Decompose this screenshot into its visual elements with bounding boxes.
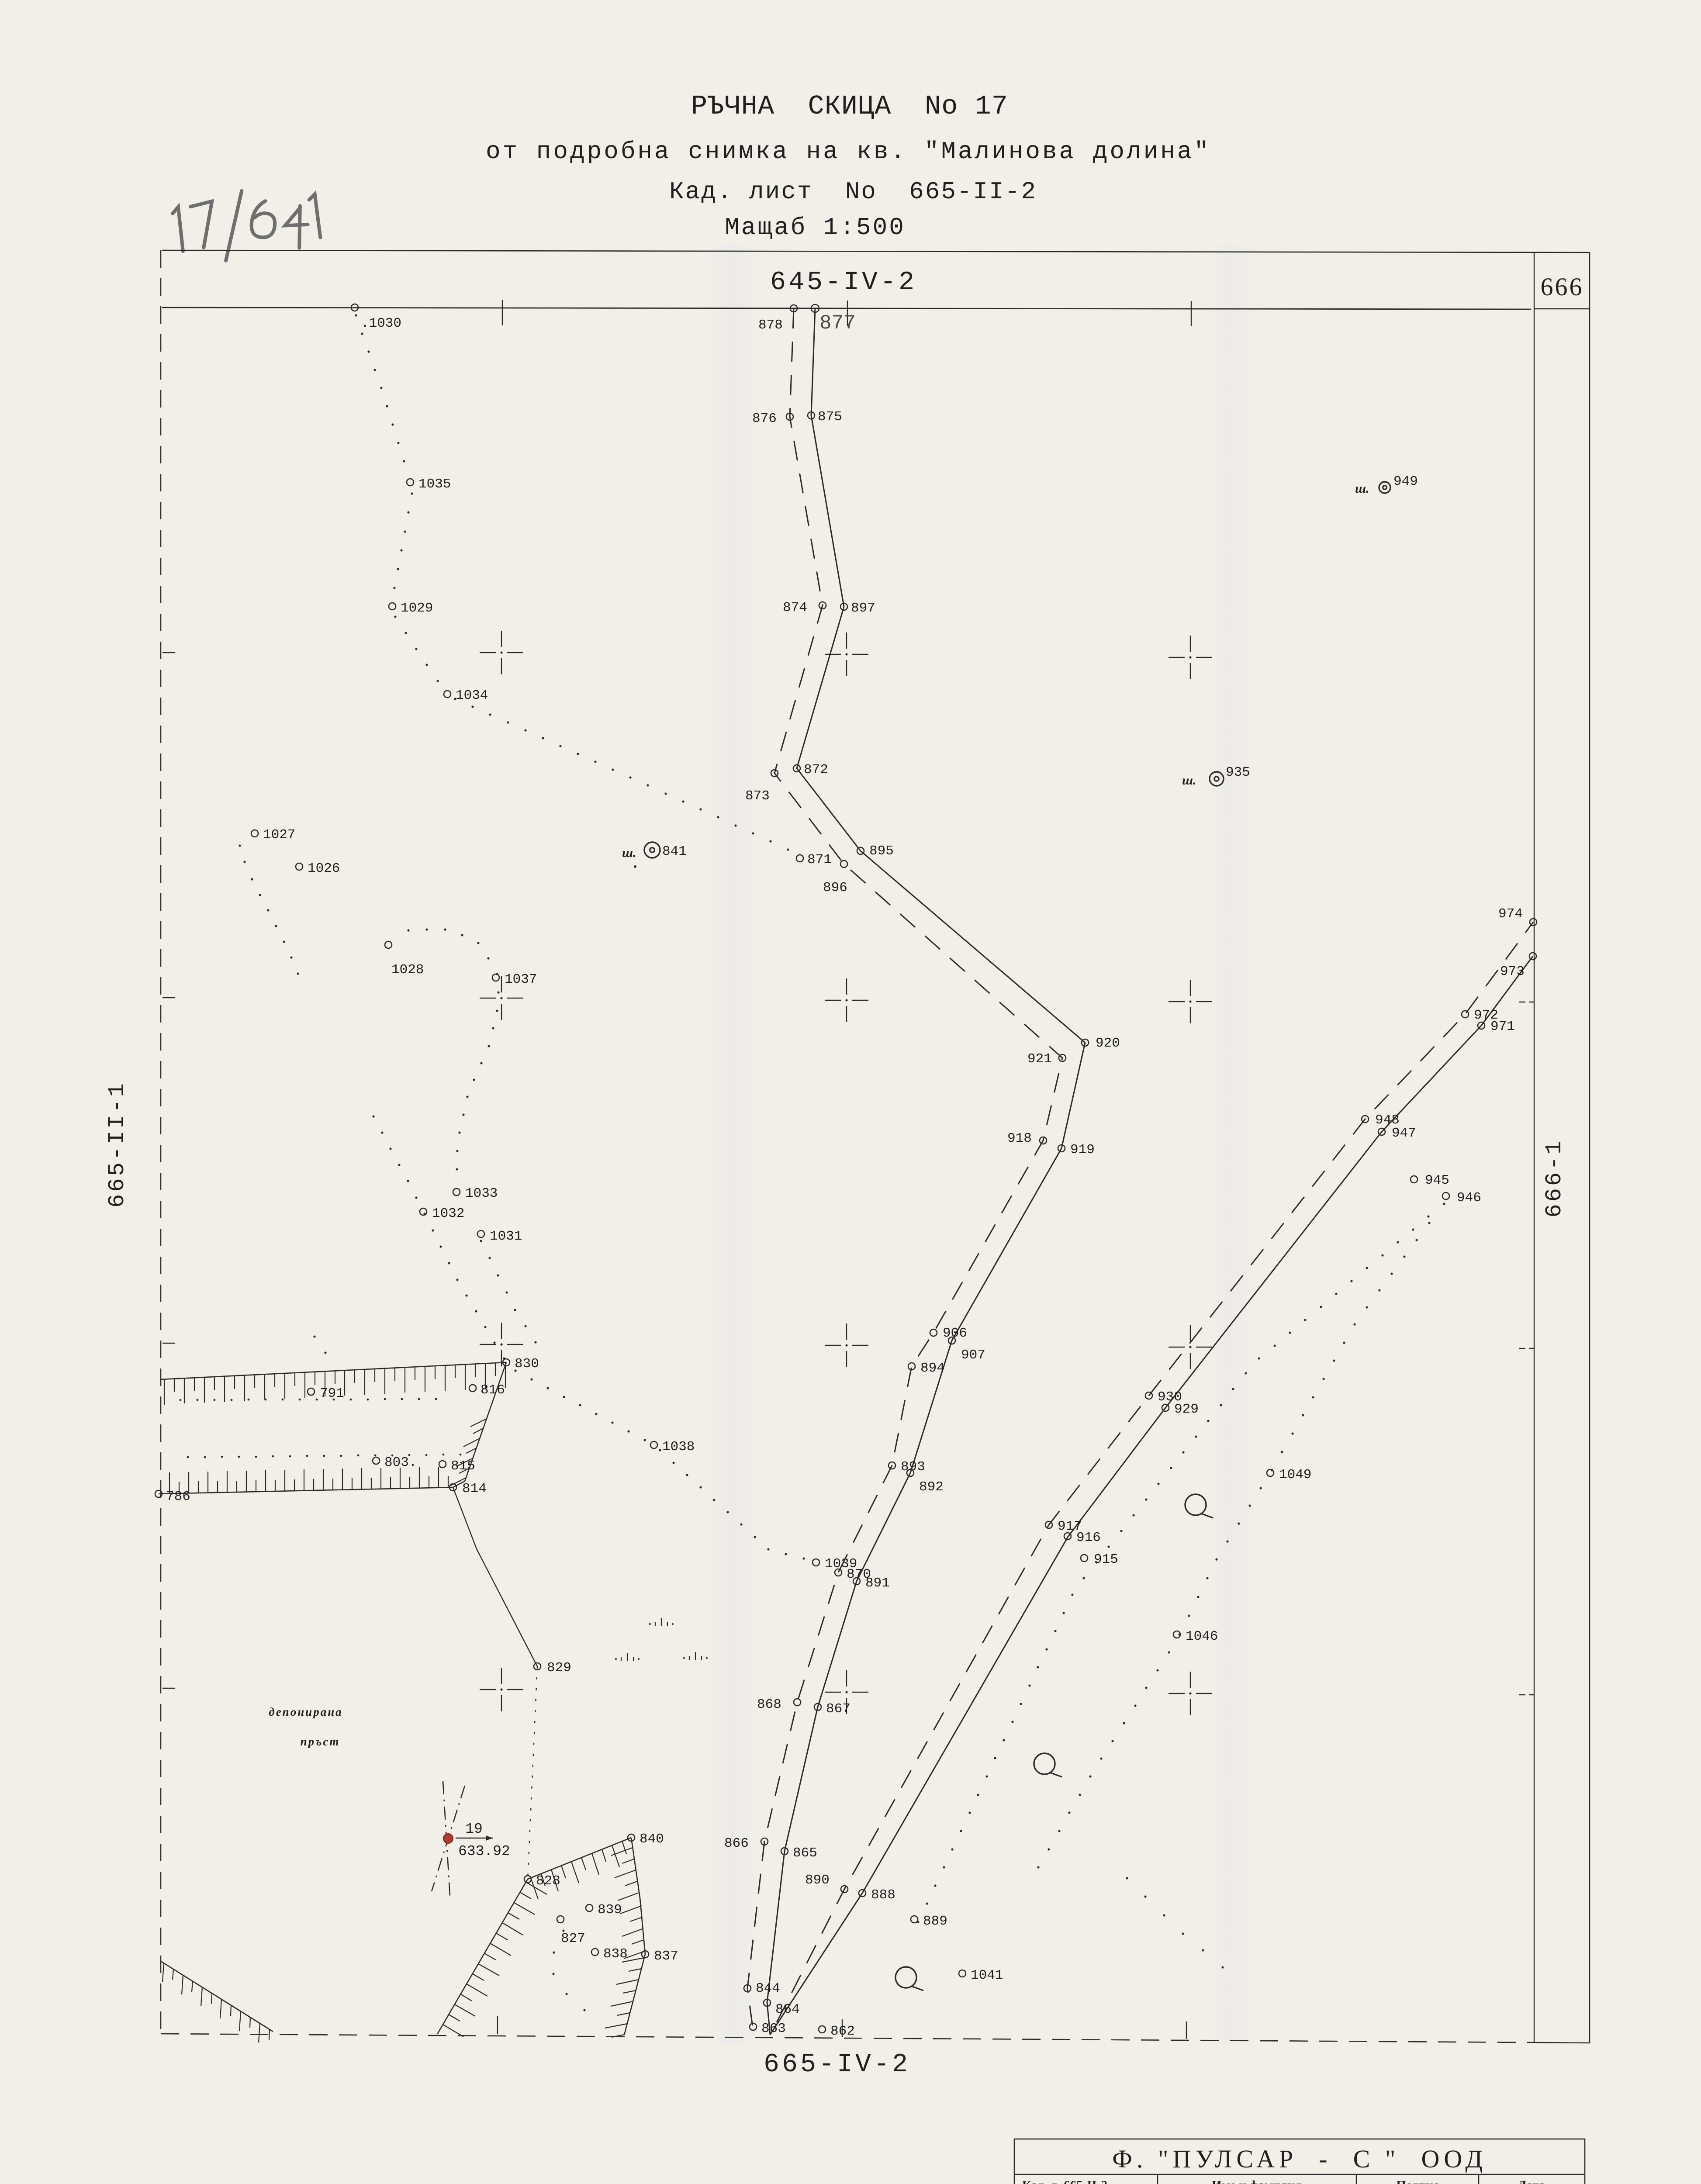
svg-text:1041: 1041 [971,1968,1003,1983]
svg-text:1035: 1035 [418,477,451,492]
svg-text:873: 873 [745,788,770,804]
svg-text:916: 916 [1076,1530,1101,1545]
svg-text:838: 838 [603,1946,628,1962]
svg-text:918: 918 [1007,1131,1032,1146]
svg-text:844: 844 [756,1981,780,1996]
svg-text:840: 840 [640,1832,664,1847]
svg-text:971: 971 [1490,1019,1515,1034]
svg-text:791: 791 [320,1386,344,1401]
svg-text:пръст: пръст [301,1735,340,1748]
svg-text:ш.: ш. [622,846,636,860]
svg-text:973: 973 [1500,964,1525,979]
svg-text:868: 868 [757,1697,781,1712]
svg-text:РЪЧНА СКИЦА Nо 17: РЪЧНА СКИЦА Nо 17 [691,91,1008,122]
svg-text:929: 929 [1174,1402,1199,1417]
svg-text:.1030: .1030 [361,316,401,331]
svg-text:Дата: Дата [1518,2178,1545,2184]
svg-text:815: 815 [451,1458,475,1474]
svg-text:949: 949 [1393,474,1418,489]
svg-text:1027: 1027 [263,827,295,843]
svg-text:665-IV-2: 665-IV-2 [764,2050,910,2080]
svg-text:837: 837 [654,1949,678,1964]
svg-text:ш.: ш. [1355,481,1369,496]
svg-text:866: 866 [724,1836,749,1851]
svg-text:1037: 1037 [505,972,537,987]
svg-text:666-1: 666-1 [1542,1138,1567,1217]
svg-text:ш.: ш. [1182,773,1196,788]
svg-text:890: 890 [805,1873,830,1888]
svg-text:19: 19 [465,1821,483,1837]
svg-text:875: 875 [818,409,842,425]
svg-text:Кад. л. 665-II-2: Кад. л. 665-II-2 [1022,2178,1107,2184]
svg-text:1031: 1031 [490,1229,522,1244]
svg-text:946: 946 [1457,1190,1481,1206]
svg-text:633.92: 633.92 [458,1843,510,1859]
svg-text:от подробна снимка на кв. "Мал: от подробна снимка на кв. "Малинова доли… [486,138,1211,166]
svg-text:827: 827 [561,1931,585,1946]
svg-text:872: 872 [804,762,828,778]
svg-text:920: 920 [1096,1036,1120,1051]
svg-text:894: 894 [920,1361,945,1376]
svg-text:депонирана: депонирана [269,1705,342,1718]
svg-text:862: 862 [830,2024,855,2039]
svg-text:888: 888 [871,1887,895,1903]
svg-text:878: 878 [758,318,783,333]
svg-text:1034: 1034 [456,688,488,703]
svg-text:1033: 1033 [465,1186,498,1201]
svg-text:841: 841 [662,844,687,859]
svg-text:666: 666 [1541,273,1584,301]
svg-text:Кад. лист Nо 665-II-2: Кад. лист Nо 665-II-2 [669,178,1037,206]
svg-text:1038: 1038 [662,1439,695,1455]
svg-text:Ф. "ПУЛСАР - С " ООД: Ф. "ПУЛСАР - С " ООД [1112,2145,1487,2173]
svg-text:891: 891 [865,1576,890,1591]
svg-text:863: 863 [761,2021,786,2036]
svg-text:896: 896 [823,880,847,895]
svg-text:1028: 1028 [391,962,424,978]
svg-text:865: 865 [793,1845,817,1861]
svg-text:907: 907 [961,1348,985,1363]
svg-text:935: 935 [1226,765,1250,780]
svg-text:665-II-1: 665-II-1 [104,1081,130,1208]
svg-text:Мащаб 1:500: Мащаб 1:500 [725,214,906,242]
svg-text:921: 921 [1027,1051,1052,1067]
svg-text:871: 871 [807,852,832,867]
svg-text:874: 874 [783,600,807,615]
svg-text:816: 816 [481,1382,505,1398]
svg-text:1026: 1026 [308,861,340,876]
svg-text:945: 945 [1425,1173,1449,1188]
svg-text:877: 877 [819,312,856,335]
svg-text:829: 829 [547,1660,571,1676]
svg-text:974: 974 [1498,906,1523,922]
svg-text:Име и фамилия: Име и фамилия [1212,2178,1302,2184]
svg-text:892: 892 [919,1479,944,1495]
svg-text:803.: 803. [384,1455,417,1470]
svg-text:915: 915 [1094,1552,1118,1567]
svg-text:839: 839 [598,1902,622,1918]
svg-text:786: 786 [166,1489,190,1504]
svg-text:867: 867 [826,1701,850,1717]
svg-text:947: 947 [1392,1126,1416,1141]
svg-text:828: 828 [536,1873,560,1889]
svg-text:1029: 1029 [401,601,433,616]
svg-text:645-IV-2: 645-IV-2 [770,268,917,297]
svg-text:893: 893 [901,1459,925,1475]
svg-text:876: 876 [752,411,777,426]
svg-text:864: 864 [775,2002,800,2017]
svg-text:814: 814 [462,1481,487,1496]
svg-text:830: 830 [515,1356,539,1372]
svg-text:1032: 1032 [432,1206,464,1221]
svg-text:895: 895 [869,843,894,859]
svg-text:919: 919 [1070,1142,1095,1158]
svg-text:889: 889 [923,1914,947,1929]
svg-text:1046: 1046 [1186,1629,1218,1644]
svg-text:Подпис: Подпис [1396,2178,1438,2184]
svg-text:897: 897 [851,601,875,616]
svg-text:1049: 1049 [1279,1467,1311,1482]
